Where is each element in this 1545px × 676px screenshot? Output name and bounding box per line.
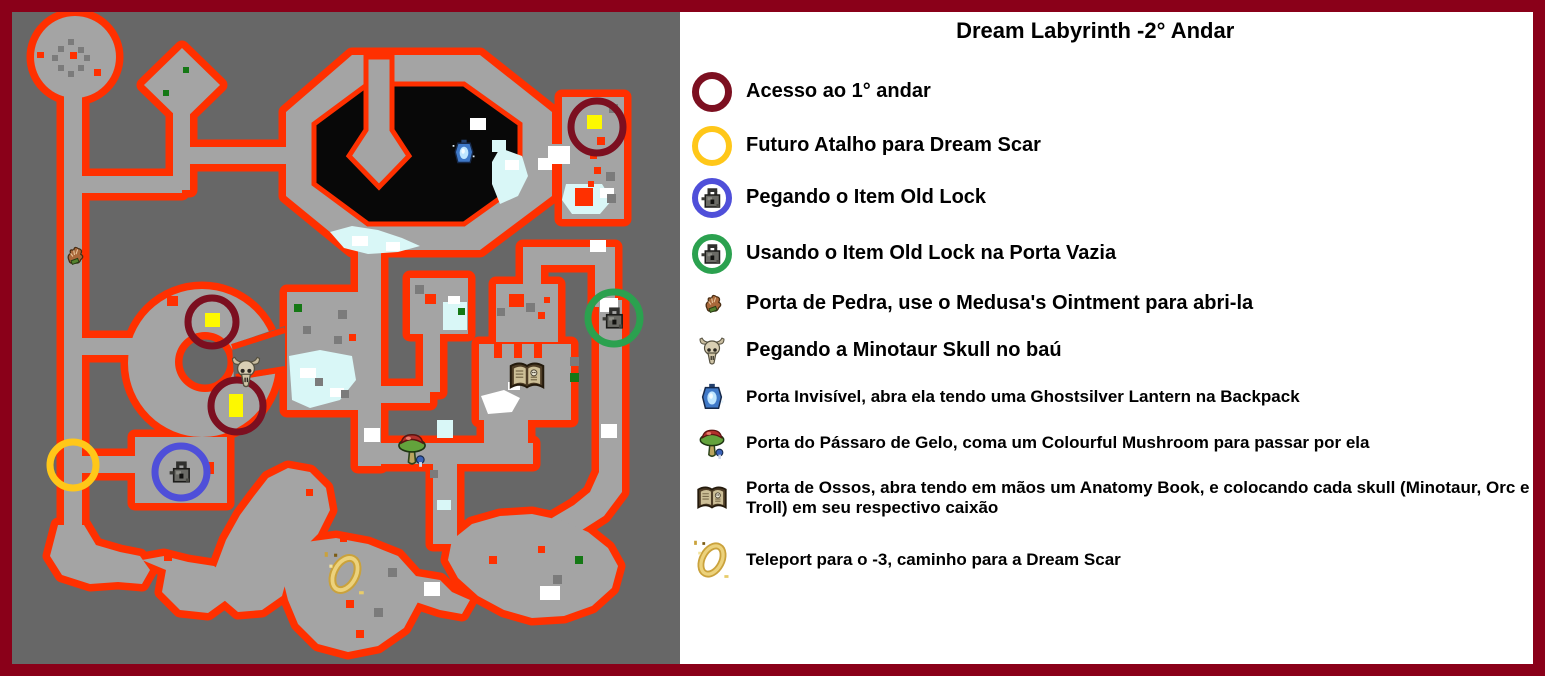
legend-label: Teleport para o -3, caminho para a Dream… (746, 550, 1121, 570)
blue-circle-icon (692, 178, 732, 218)
legend-label: Acesso ao 1° andar (746, 80, 931, 104)
minotaur-skull-icon (696, 335, 728, 367)
maroon-circle-icon (692, 72, 732, 112)
legend-label: Porta do Pássaro de Gelo, coma um Colour… (746, 433, 1369, 453)
legend-title: Dream Labyrinth -2° Andar (680, 18, 1510, 44)
legend-label: Usando o Item Old Lock na Porta Vazia (746, 242, 1116, 266)
old-lock-icon (700, 186, 724, 210)
teleport-ring-icon (690, 535, 734, 585)
colourful-mushroom-icon (695, 426, 729, 460)
legend-row-invisible-door: Porta Invisível, abra ela tendo uma Ghos… (688, 374, 1300, 420)
legend-label: Futuro Atalho para Dream Scar (746, 134, 1041, 158)
legend-row-access: Acesso ao 1° andar (688, 66, 931, 118)
legend-row-old-lock-use: Usando o Item Old Lock na Porta Vazia (688, 228, 1116, 280)
legend-row-ice-bird-door: Porta do Pássaro de Gelo, coma um Colour… (688, 420, 1369, 466)
green-circle-icon (692, 234, 732, 274)
legend-label: Pegando a Minotaur Skull no baú (746, 339, 1062, 363)
labyrinth-map-svg (0, 0, 680, 676)
legend-label: Porta de Ossos, abra tendo em mãos um An… (746, 478, 1541, 518)
legend-panel: Dream Labyrinth -2° Andar Acesso ao 1° a… (680, 0, 1545, 676)
legend-row-minotaur-skull: Pegando a Minotaur Skull no baú (688, 328, 1062, 374)
ghostsilver-lantern-icon (697, 382, 727, 412)
map-anatomy-book-icon (511, 364, 544, 388)
legend-row-future-shortcut: Futuro Atalho para Dream Scar (688, 120, 1041, 172)
legend-label: Porta Invisível, abra ela tendo uma Ghos… (746, 387, 1300, 407)
legend-label: Pegando o Item Old Lock (746, 186, 986, 210)
legend-row-stone-door: Porta de Pedra, use o Medusa's Ointment … (688, 282, 1253, 326)
labyrinth-map (0, 0, 680, 676)
yellow-circle-icon (692, 126, 732, 166)
anatomy-book-icon (695, 481, 729, 515)
legend-label: Porta de Pedra, use o Medusa's Ointment … (746, 292, 1253, 316)
legend-row-teleport: Teleport para o -3, caminho para a Dream… (688, 532, 1121, 588)
legend-row-bone-door: Porta de Ossos, abra tendo em mãos um An… (688, 468, 1541, 528)
legend-row-old-lock-pickup: Pegando o Item Old Lock (688, 172, 986, 224)
dream-labyrinth-guide: Dream Labyrinth -2° Andar Acesso ao 1° a… (0, 0, 1545, 676)
old-lock-icon (700, 242, 724, 266)
medusa-ointment-icon (700, 292, 725, 317)
